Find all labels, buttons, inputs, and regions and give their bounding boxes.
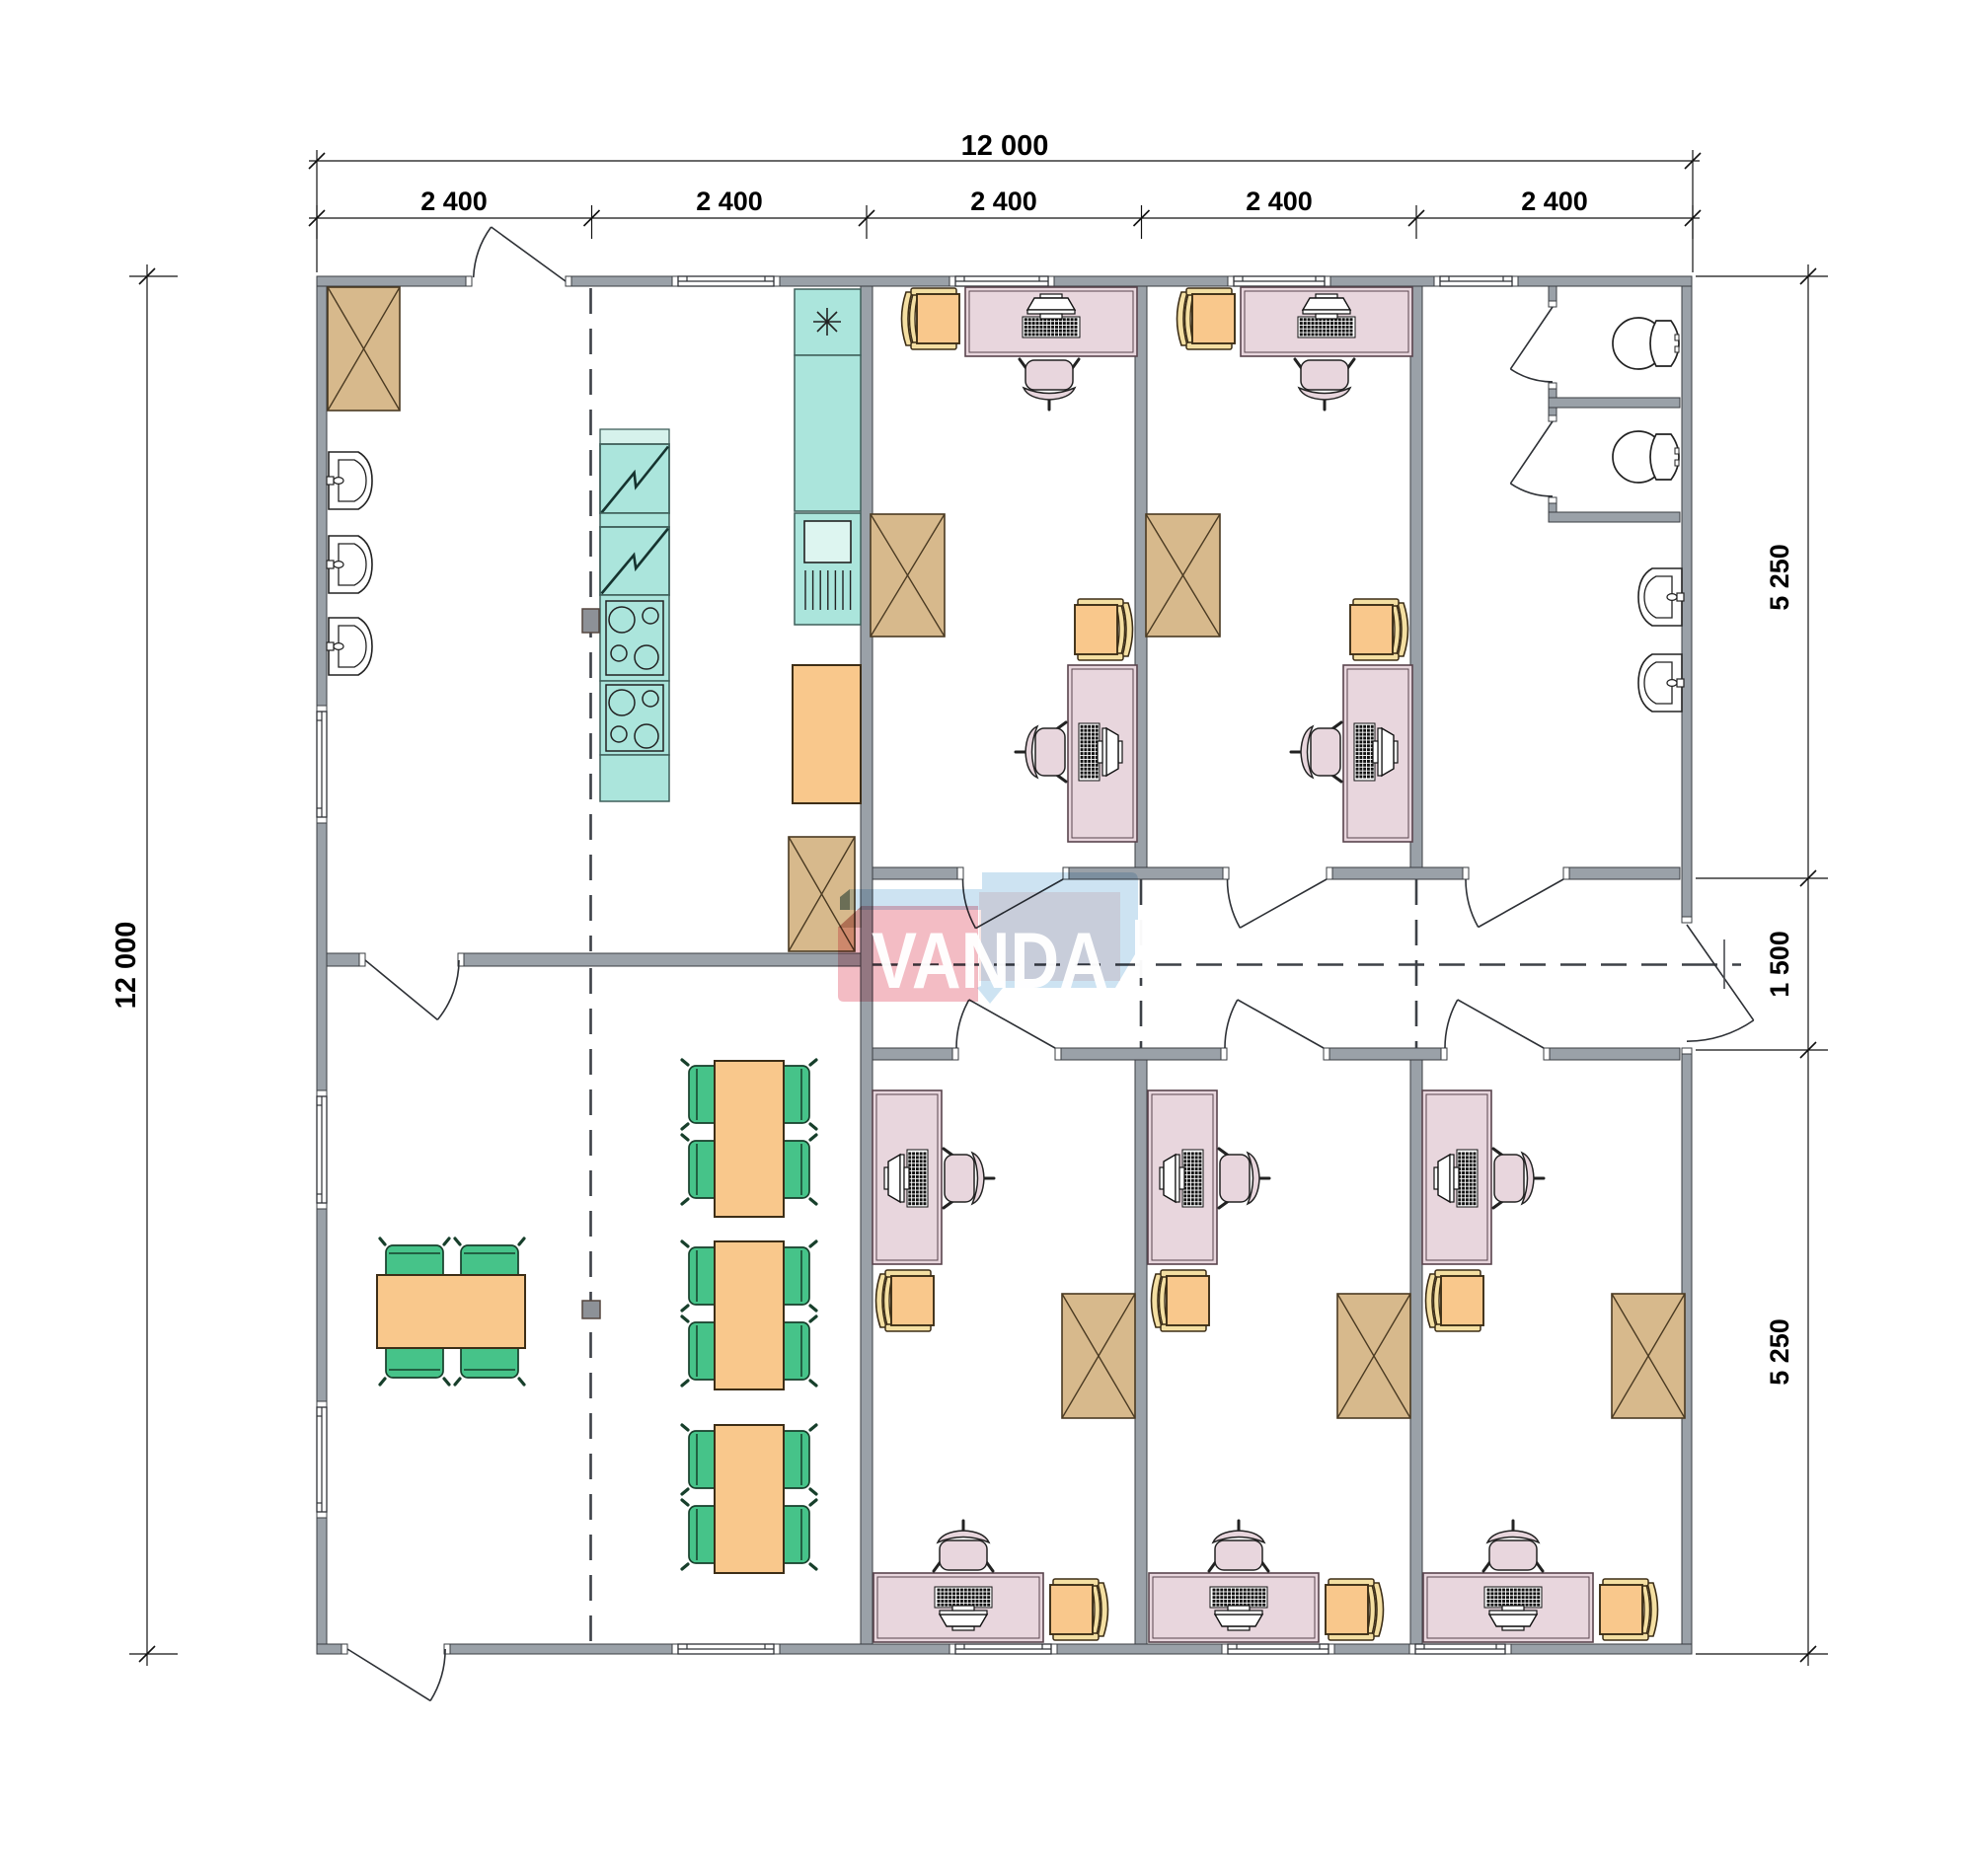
svg-text:2 400: 2 400 <box>970 187 1037 216</box>
svg-text:5 250: 5 250 <box>1765 1318 1794 1386</box>
svg-text:12 000: 12 000 <box>961 130 1049 162</box>
svg-text:1 500: 1 500 <box>1765 931 1794 998</box>
svg-text:5 250: 5 250 <box>1765 544 1794 611</box>
svg-text:VANDA: VANDA <box>872 917 1108 1006</box>
svg-text:2 400: 2 400 <box>1521 187 1588 216</box>
svg-text:12 000: 12 000 <box>111 922 142 1010</box>
svg-text:2 400: 2 400 <box>420 187 488 216</box>
svg-text:2 400: 2 400 <box>1246 187 1313 216</box>
svg-text:2 400: 2 400 <box>696 187 763 216</box>
